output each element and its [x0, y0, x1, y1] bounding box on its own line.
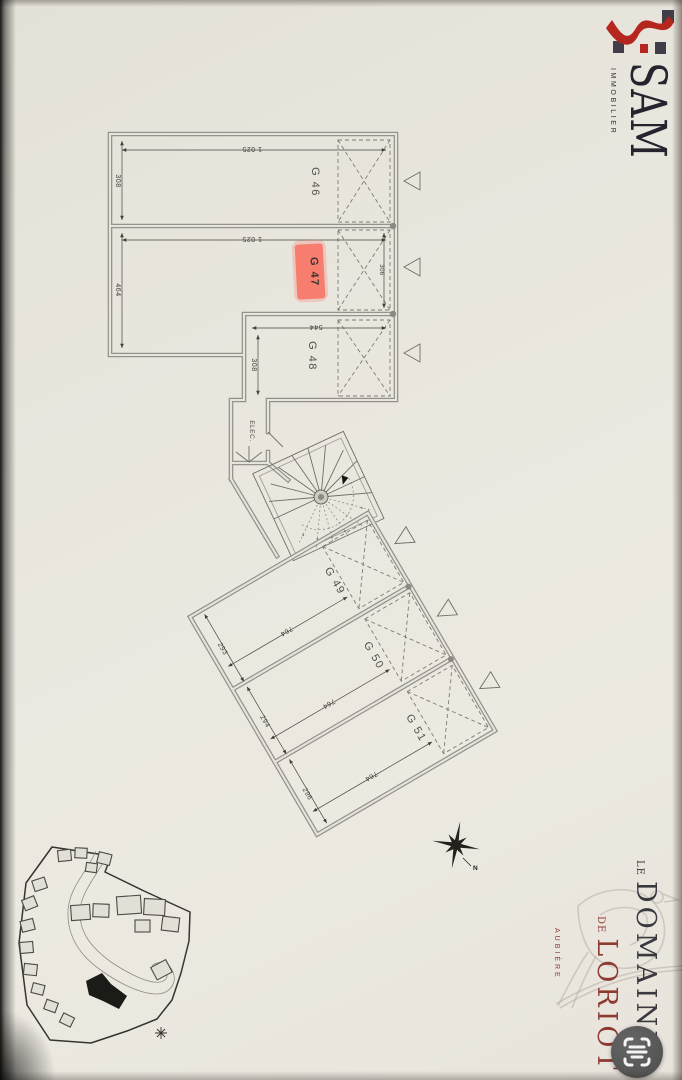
dimension-g47-depth: 464 — [114, 283, 121, 296]
entry-arrow — [475, 672, 500, 697]
dimension-g47-door: 306 — [378, 264, 384, 276]
site-compass-star — [155, 1027, 167, 1039]
garage-door-g48 — [338, 320, 390, 396]
garage-label-g46: G 46 — [309, 167, 321, 197]
door-post — [390, 311, 396, 317]
dimension-g49-width: 293 — [216, 642, 229, 657]
door-post — [390, 223, 396, 229]
site-plan — [19, 847, 190, 1043]
text-scan-icon — [611, 1026, 663, 1078]
dimension-g51-width: 296 — [301, 787, 314, 802]
entry-arrow — [404, 344, 420, 362]
branding-de: DE — [595, 916, 606, 933]
upper-garage-block: 1 025 308 1 025 464 544 308 306 G 46 G 4… — [110, 134, 420, 556]
entry-arrow — [404, 172, 420, 190]
sam-logo-mark — [604, 8, 676, 58]
garage-label-g47: G 47 — [307, 257, 320, 287]
dimension-g46-depth: 308 — [114, 174, 121, 187]
entry-arrow — [404, 258, 420, 276]
site-buildings — [20, 848, 180, 1027]
entry-arrow — [390, 527, 415, 552]
sam-logo: SAM IMMOBILIER — [594, 8, 682, 168]
dimension-g47-width: 1 025 — [242, 235, 262, 242]
site-highlighted-building — [86, 973, 127, 1009]
compass-rose: N — [432, 821, 479, 872]
garage-label-g49: G 49 — [322, 565, 347, 597]
room-label-elec: ELEC. — [248, 420, 255, 441]
dimension-g48-width: 544 — [309, 323, 322, 330]
garage-label-g51: G 51 — [403, 712, 428, 744]
scan-text-button[interactable] — [611, 1026, 663, 1078]
garage-label-g50: G 50 — [361, 640, 386, 672]
compass-north-label: N — [473, 865, 478, 872]
lower-garage-block: 293 294 296 764 764 764 G 49 G 50 G 51 — [190, 500, 517, 835]
garage-door-g46 — [338, 140, 390, 222]
garage-label-g48: G 48 — [306, 341, 318, 371]
branding-le: LE — [634, 860, 645, 876]
branding-location: AUBIÈRE — [553, 928, 560, 1060]
entry-arrow — [433, 599, 458, 624]
sam-logo-name: SAM — [619, 62, 676, 159]
highlight-marker-g47: G 47 — [291, 239, 328, 303]
stair-direction-arrow — [339, 473, 350, 485]
dimension-g46-width: 1 025 — [242, 145, 262, 152]
sam-logo-subtitle: IMMOBILIER — [609, 68, 616, 135]
dimension-g48-depth: 308 — [250, 358, 257, 371]
dimension-g50-width: 294 — [258, 714, 271, 729]
